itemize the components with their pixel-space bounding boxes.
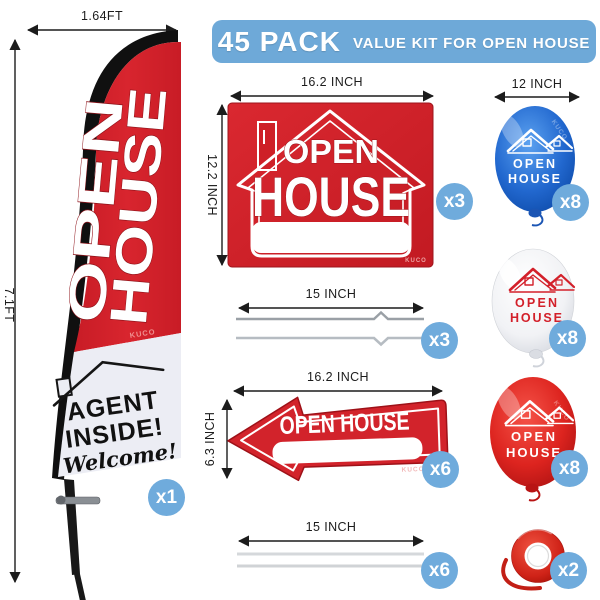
arrow-sign-art: OPEN HOUSE KUCO — [227, 392, 449, 483]
wire-stakes-qty-badge: x3 — [421, 322, 458, 359]
balloon-blue-qty-badge: x8 — [552, 184, 589, 221]
balloon-blue-knot — [529, 209, 542, 218]
ribbon-qty-badge: x2 — [550, 552, 587, 589]
balloon-red-qty-badge: x8 — [551, 450, 588, 487]
balloon-red-knot — [526, 484, 539, 493]
house-sign-qty-badge: x3 — [436, 183, 473, 220]
house-sign-width-label: 16.2 INCH — [301, 75, 363, 89]
kit-items-graphic: 1.64FT 7.1FT OPEN HOUSE KUCO AGENT INSID… — [0, 0, 600, 600]
house-sign-brand-watermark: KUCO — [405, 258, 427, 264]
house-sign-blank-field — [252, 222, 410, 253]
flag-roof-chimney — [57, 378, 72, 397]
balloon-blue-text-house: HOUSE — [508, 172, 560, 186]
wire-stake-1 — [236, 313, 424, 320]
arrow-sign-width-label: 16.2 INCH — [307, 370, 369, 384]
arrow-sign-qty-badge: x6 — [422, 451, 459, 488]
balloon-white-qty-badge: x8 — [549, 320, 586, 357]
flag-height-label: 7.1FT — [2, 288, 16, 323]
ribbon-core — [525, 543, 552, 570]
flag-pole — [64, 479, 80, 575]
flag-pole-clip-knob — [57, 496, 66, 505]
wire-stake-2 — [236, 338, 424, 345]
arrow-sign-text: OPEN HOUSE — [279, 407, 410, 440]
house-sign-height-label: 12.2 INCH — [205, 154, 219, 216]
wire-stakes-group: 15 INCH — [236, 287, 424, 345]
balloon-white-knot — [530, 350, 543, 359]
wire-stakes-length-label: 15 INCH — [306, 287, 357, 301]
flag-ground-spike — [74, 574, 86, 600]
flag-width-label: 1.64FT — [81, 9, 123, 23]
house-sign-group: 16.2 INCH 12.2 INCH OPEN HOUSE KUCO — [205, 75, 433, 267]
open-house-kit-product-image: 45 PACK VALUE KIT FOR OPEN HOUSE — [0, 0, 600, 600]
straight-stakes-length-label: 15 INCH — [306, 520, 357, 534]
balloon-size-label: 12 INCH — [512, 77, 563, 91]
flag-qty-badge: x1 — [148, 479, 185, 516]
straight-stakes-qty-badge: x6 — [421, 552, 458, 589]
house-sign-text-house: HOUSE — [252, 165, 410, 228]
balloon-red-text-house: HOUSE — [506, 445, 560, 460]
straight-stakes-group: 15 INCH — [237, 520, 424, 566]
arrow-sign-height-label: 6.3 INCH — [203, 412, 217, 467]
balloon-white-text-house: HOUSE — [510, 311, 562, 325]
arrow-sign-group: 16.2 INCH 6.3 INCH OPEN HOUSE KUCO — [203, 370, 448, 483]
